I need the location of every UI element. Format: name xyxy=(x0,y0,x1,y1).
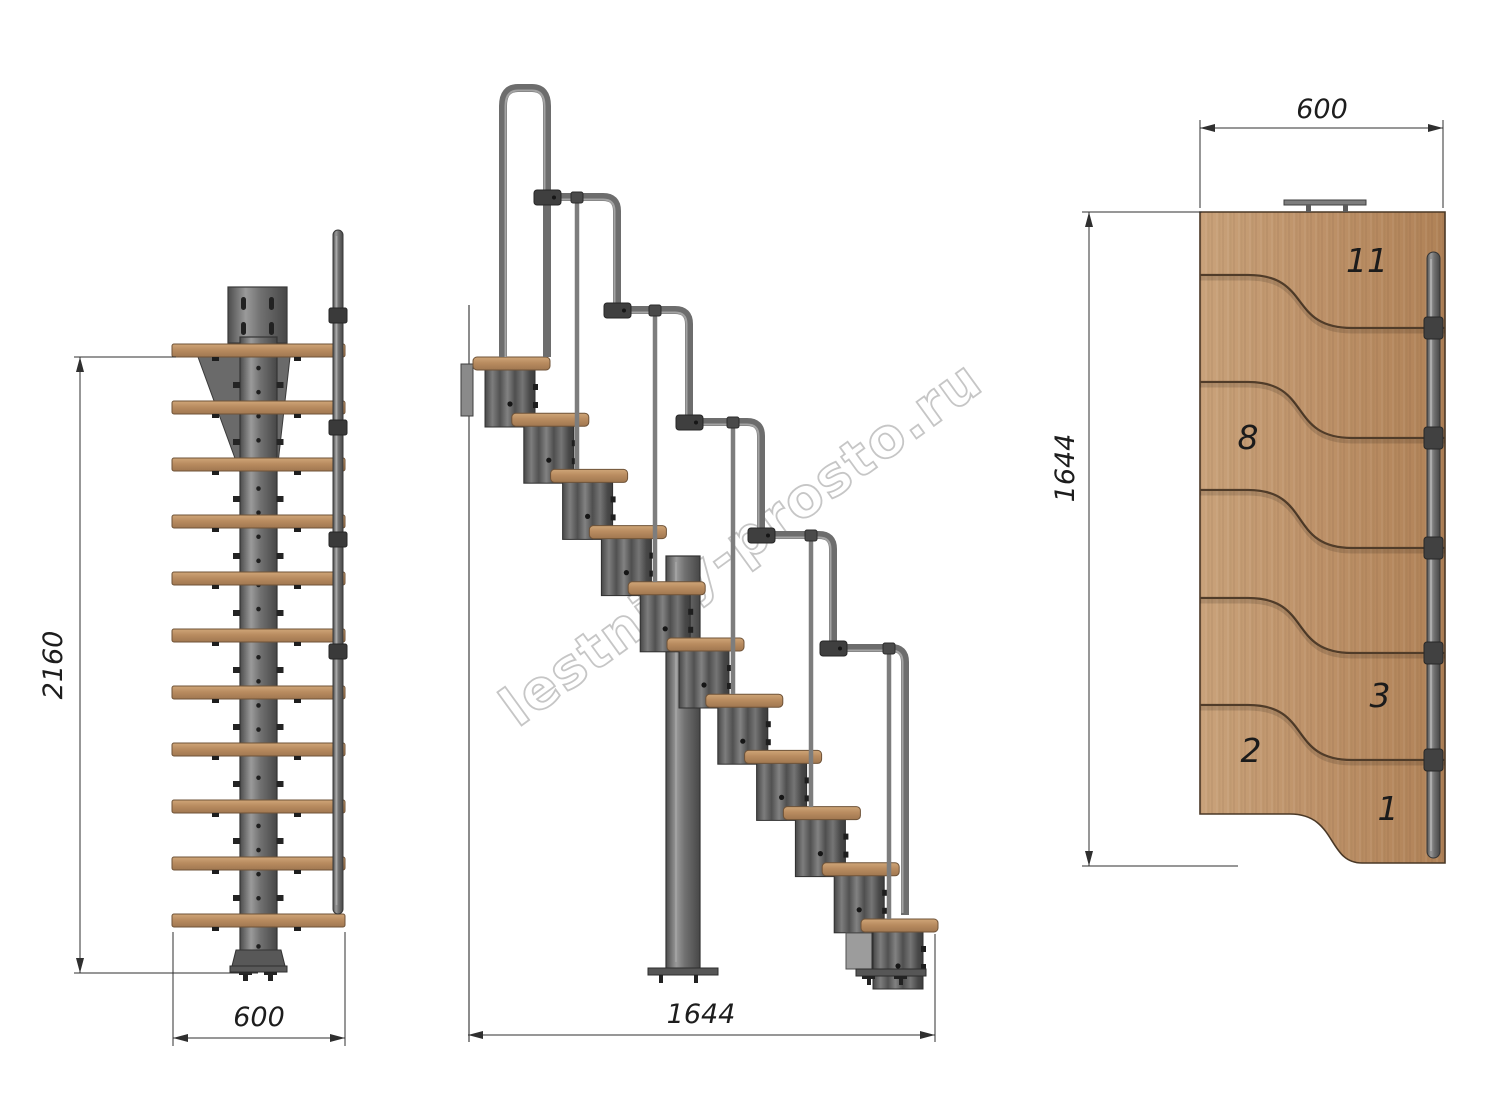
plan-wall-bracket xyxy=(1284,200,1366,212)
stair-drawing-page: 2160 600 lestnicy-prosto.ru xyxy=(0,0,1500,1114)
plan-view: 11 8 3 2 1 xyxy=(1050,94,1445,866)
front-width-label: 600 xyxy=(233,1002,285,1033)
step-number-3: 3 xyxy=(1370,676,1391,715)
step-number-1: 1 xyxy=(1378,789,1399,828)
step-number-8: 8 xyxy=(1238,418,1259,457)
side-wall-bracket xyxy=(461,364,473,416)
stair-technical-drawing: 2160 600 lestnicy-prosto.ru xyxy=(0,0,1500,1114)
front-view: 2160 600 xyxy=(38,230,347,1046)
bottom-base-plate xyxy=(856,969,926,976)
side-length-label: 1644 xyxy=(667,999,736,1030)
front-height-label: 2160 xyxy=(38,631,69,700)
plan-handrail xyxy=(1424,252,1443,858)
watermark: lestnicy-prosto.ru xyxy=(489,347,994,738)
side-view: lestnicy-prosto.ru xyxy=(461,88,994,1042)
dimension-front-height xyxy=(74,357,258,973)
plan-length-label: 1644 xyxy=(1050,434,1081,503)
handrail-loop xyxy=(503,88,547,357)
plan-width-label: 600 xyxy=(1296,94,1348,125)
step-number-11: 11 xyxy=(1346,241,1388,280)
dimension-plan-width xyxy=(1200,120,1443,208)
step-number-2: 2 xyxy=(1241,731,1262,770)
